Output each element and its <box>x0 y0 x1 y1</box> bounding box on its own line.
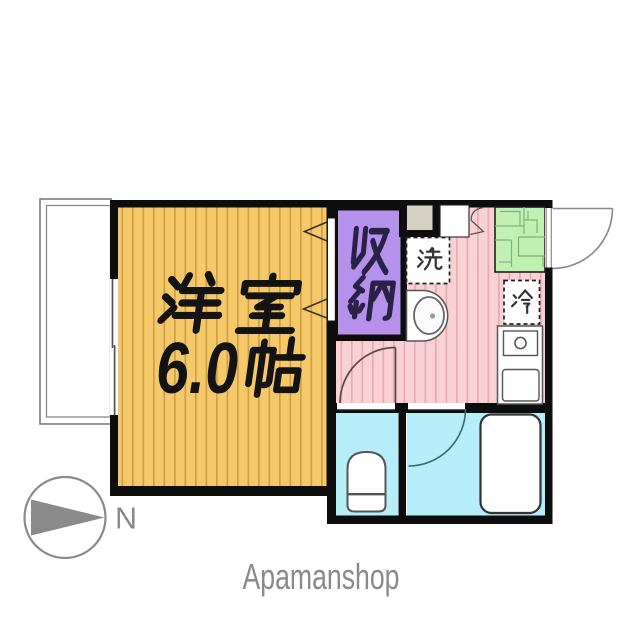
svg-text:Apamanshop: Apamanshop <box>243 556 400 597</box>
svg-text:6.0: 6.0 <box>156 327 238 408</box>
svg-text:N: N <box>115 502 137 536</box>
